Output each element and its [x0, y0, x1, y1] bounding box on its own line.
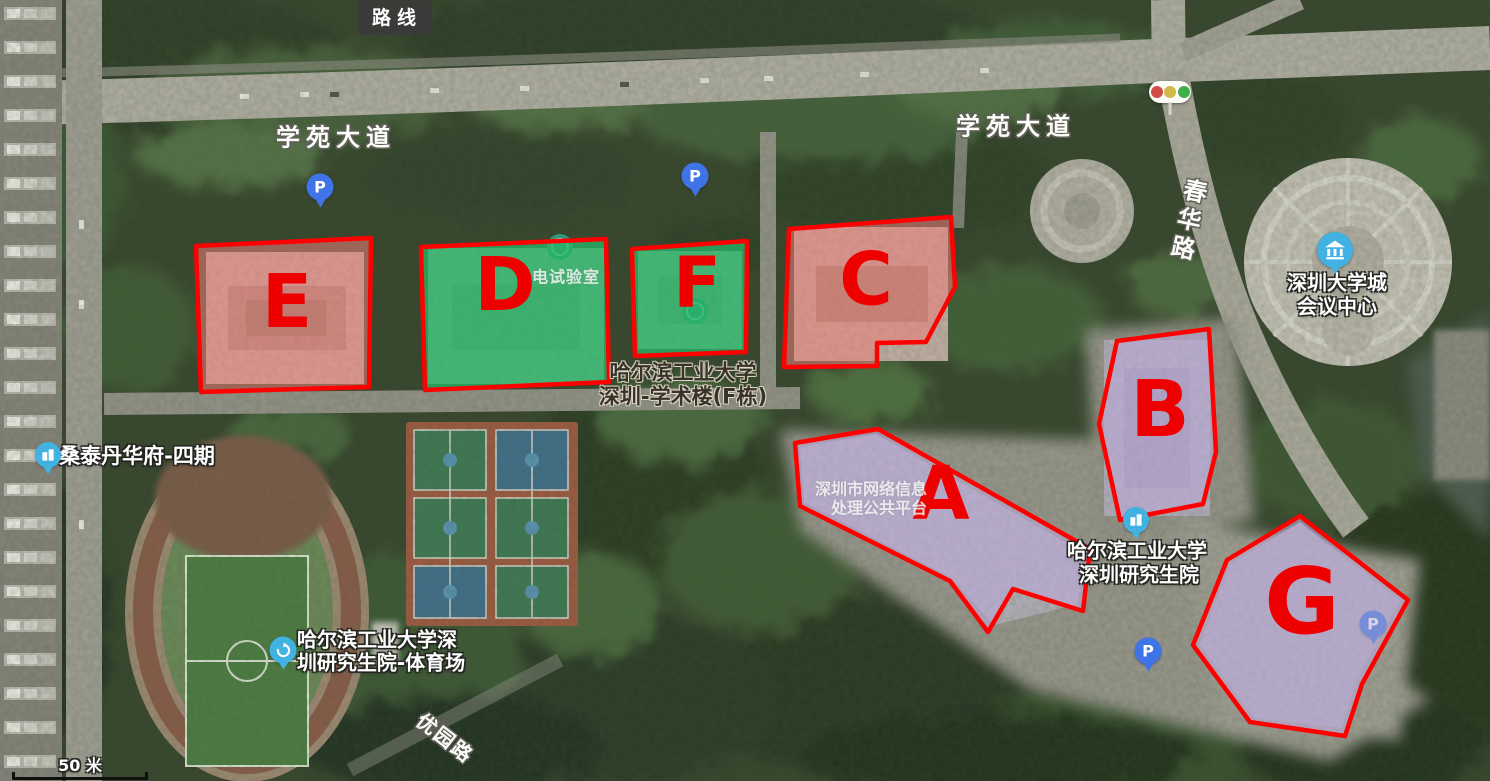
- region-label-B: B: [1130, 371, 1189, 449]
- region-label-D: D: [474, 248, 535, 322]
- conference-center-label-line2: 会议中心: [1297, 295, 1377, 320]
- graduate-school-pin[interactable]: [1123, 507, 1149, 533]
- region-label-F: F: [673, 248, 721, 318]
- conference-center-pin[interactable]: [1317, 232, 1353, 268]
- road-label-xueyuan-west: 学苑大道: [276, 118, 396, 153]
- academic-building-label-line2: 深圳-学术楼(F栋): [599, 384, 767, 409]
- region-label-E: E: [262, 265, 313, 339]
- parking-p-icon: P: [1367, 615, 1379, 634]
- academic-building-label-line1: 哈尔滨工业大学: [610, 360, 757, 385]
- region-label-G: G: [1264, 556, 1340, 648]
- traffic-green-dot: [1178, 86, 1190, 98]
- route-button[interactable]: 路线: [358, 0, 432, 35]
- graduate-school-label-line2: 深圳研究生院: [1079, 563, 1199, 588]
- parking-pin-west[interactable]: P: [307, 174, 334, 201]
- traffic-light-stem: [1169, 102, 1172, 115]
- traffic-red-dot: [1151, 86, 1163, 98]
- running-track-icon: [275, 642, 291, 658]
- map-viewport[interactable]: A B C D E F G 学苑大道 学苑大道 春华路 优园路 深圳大学城 会议…: [0, 0, 1490, 781]
- region-label-C: C: [839, 244, 893, 317]
- santai-label: 桑泰丹华府-四期: [59, 443, 215, 469]
- traffic-yellow-dot: [1164, 86, 1176, 98]
- stadium-pin[interactable]: [270, 637, 297, 664]
- network-platform-label-line2: 处理公共平台: [831, 499, 927, 520]
- lab-label: 电试验室: [532, 268, 600, 289]
- building-icon: [1129, 513, 1143, 527]
- stadium-label-line2: 圳研究生院-体育场: [297, 651, 465, 676]
- road-label-xueyuan-east: 学苑大道: [956, 107, 1076, 142]
- parking-p-icon: P: [689, 167, 701, 186]
- scale-bar: [12, 772, 148, 780]
- parking-pin-region-g[interactable]: P: [1360, 611, 1387, 638]
- parking-pin-center[interactable]: P: [682, 163, 709, 190]
- parking-p-icon: P: [1142, 642, 1154, 661]
- santai-pin[interactable]: [35, 442, 61, 468]
- stadium-label-line1: 哈尔滨工业大学深: [297, 628, 457, 653]
- traffic-light-icon: [1149, 81, 1191, 103]
- museum-icon: [1324, 239, 1346, 261]
- parking-p-icon: P: [314, 178, 326, 197]
- parking-pin-south[interactable]: P: [1135, 638, 1162, 665]
- network-platform-label-line1: 深圳市网络信息: [815, 480, 927, 501]
- building-icon: [41, 448, 55, 462]
